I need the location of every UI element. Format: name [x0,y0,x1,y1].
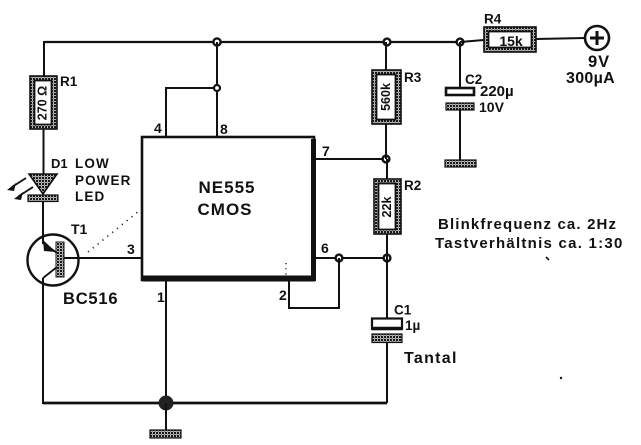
svg-text:22k: 22k [380,197,394,218]
svg-text:T1: T1 [71,221,88,237]
svg-text:10V: 10V [479,99,505,115]
svg-text:7: 7 [322,143,330,159]
svg-text:NE555: NE555 [199,178,256,197]
svg-text:D1: D1 [51,156,68,171]
svg-text:15k: 15k [499,33,523,49]
svg-text:1µ: 1µ [405,318,420,333]
svg-text:Tastverhältnis ca. 1:30: Tastverhältnis ca. 1:30 [435,235,624,252]
svg-text:CMOS: CMOS [198,200,253,219]
svg-text:8: 8 [220,121,228,137]
svg-text:300µA: 300µA [566,70,615,87]
svg-text:LED: LED [75,189,105,204]
svg-text:9V: 9V [588,53,610,71]
svg-text:3: 3 [127,241,135,257]
svg-text:C1: C1 [394,303,412,318]
svg-text:Tantal: Tantal [404,350,458,367]
svg-text:6: 6 [321,240,329,256]
svg-text:220µ: 220µ [480,83,514,100]
svg-text:560k: 560k [379,83,393,111]
svg-text:Blinkfrequenz ca. 2Hz: Blinkfrequenz ca. 2Hz [438,216,617,233]
svg-text:LOW: LOW [75,156,110,171]
svg-text:270 Ω: 270 Ω [35,86,49,120]
svg-text:R3: R3 [404,70,422,85]
svg-text:R2: R2 [404,178,421,193]
svg-text:POWER: POWER [75,173,132,188]
svg-text:1: 1 [157,289,165,305]
svg-text:R4: R4 [484,12,502,27]
svg-text:4: 4 [154,120,162,136]
svg-text:BC516: BC516 [63,290,118,308]
svg-text:R1: R1 [60,74,78,89]
svg-text:2: 2 [279,287,287,303]
